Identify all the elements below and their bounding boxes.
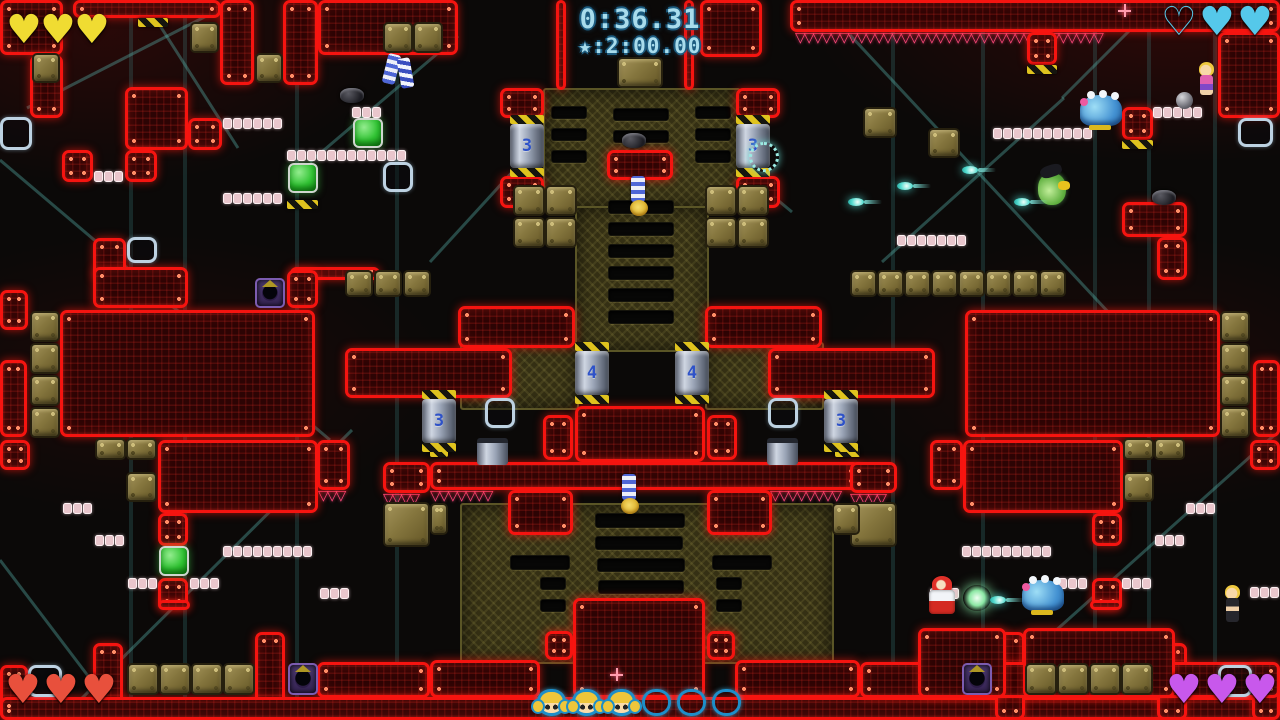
rescued-sister-icon — [607, 689, 636, 716]
pink-tile — [330, 588, 339, 599]
red-switch-block — [188, 118, 222, 150]
cannon-block — [288, 663, 318, 695]
pink-tile-row — [287, 150, 406, 161]
spike-strip: ▽▽▽▽▽▽▽ — [430, 490, 508, 504]
red-switch-block — [0, 440, 30, 470]
pink-tile — [233, 118, 242, 129]
metal-crate-block — [545, 185, 577, 216]
piston-cylinder: 4 — [675, 351, 709, 395]
vent-slot — [540, 577, 566, 590]
sparkle-sprite — [610, 668, 623, 681]
heart-top_left-filled: ♥ — [74, 10, 110, 50]
vent-slot — [695, 150, 731, 163]
pink-tile-row — [128, 578, 157, 589]
metal-crate-block — [1220, 407, 1250, 438]
pink-tile — [992, 546, 1001, 557]
metal-crate-block — [832, 503, 860, 535]
pink-tile — [115, 535, 124, 546]
pink-tile — [1003, 128, 1012, 139]
pink-tile — [907, 235, 916, 246]
pink-tile — [73, 503, 82, 514]
numbered-piston: 3 — [422, 390, 456, 452]
numbered-piston: 3 — [510, 115, 544, 177]
metal-crate-block — [383, 22, 413, 53]
pink-tile — [1270, 587, 1279, 598]
pink-tile — [972, 546, 981, 557]
pink-tile-row — [1153, 107, 1202, 118]
red-switch-block — [508, 490, 573, 535]
pink-tile — [397, 150, 406, 161]
pink-tile — [94, 171, 103, 182]
vent-slot — [608, 222, 674, 236]
pink-tile — [223, 193, 232, 204]
pink-tile-row — [993, 128, 1092, 139]
red-switch-block — [1122, 107, 1153, 140]
pink-tile-row — [223, 118, 282, 129]
item-bracket — [1238, 118, 1273, 147]
pink-tile — [1012, 546, 1021, 557]
pink-tile — [253, 118, 262, 129]
pink-tile — [982, 546, 991, 557]
pink-tile — [253, 546, 262, 557]
pink-tile — [1063, 128, 1072, 139]
heart-bottom_right-filled: ♥ — [1242, 670, 1278, 710]
player-upside-down-sprite — [618, 474, 642, 514]
heart-top_right-filled: ♥ — [1199, 2, 1235, 42]
pink-tile — [263, 546, 272, 557]
cannon-block — [255, 278, 285, 308]
item-bracket — [383, 162, 413, 192]
pink-tile — [128, 578, 137, 589]
metal-crate-block — [190, 22, 219, 53]
red-switch-block — [60, 310, 315, 437]
heart-bottom_left-filled: ♥ — [81, 670, 117, 710]
metal-crate-block — [30, 407, 60, 438]
red-switch-block — [158, 513, 188, 546]
green-block — [288, 163, 318, 193]
pink-tile — [320, 588, 329, 599]
pink-tile — [387, 150, 396, 161]
heart-top_right-filled: ♥ — [1237, 2, 1273, 42]
rescued-sister-icon — [572, 689, 601, 716]
pink-tile-row — [1186, 503, 1215, 514]
metal-crate-block — [30, 311, 60, 342]
red-switch-block — [158, 440, 318, 513]
piston-cylinder: 3 — [422, 399, 456, 443]
metal-crate-block — [705, 185, 737, 216]
heart-top_right-empty: ♡ — [1161, 2, 1197, 42]
pink-tile — [148, 578, 157, 589]
red-switch-block — [383, 462, 430, 493]
metal-crate-block — [95, 438, 126, 460]
pink-tile — [377, 150, 386, 161]
pink-tile — [263, 193, 272, 204]
pink-tile — [372, 107, 381, 118]
pink-tile-row — [63, 503, 92, 514]
metal-crate-block — [513, 185, 545, 216]
pink-tile — [243, 193, 252, 204]
red-switch-block — [158, 600, 190, 610]
pink-tile — [1193, 107, 1202, 118]
pink-tile — [223, 118, 232, 129]
pink-tile — [297, 150, 306, 161]
red-switch-block — [458, 306, 575, 348]
pink-tile — [1073, 128, 1082, 139]
pink-tile — [233, 193, 242, 204]
numbered-piston: 4 — [575, 342, 609, 404]
sparkle-sprite — [1118, 4, 1131, 17]
vent-slot — [608, 266, 674, 280]
pink-tile — [1053, 128, 1062, 139]
metal-crate-block — [1154, 438, 1185, 460]
metal-crate-block — [30, 343, 60, 374]
metal-crate-block — [1220, 311, 1250, 342]
pink-tile-row — [95, 535, 124, 546]
pink-tile — [352, 107, 361, 118]
pink-tile — [1042, 546, 1051, 557]
metal-crate-block — [345, 270, 373, 297]
pink-tile — [347, 150, 356, 161]
pink-tile-row — [223, 193, 282, 204]
game-screen: 0:36.31 ★:2:00.00 ▽▽▽▽▽▽▽▽▽▽▽▽▽▽▽▽▽▽▽▽▽▽… — [0, 0, 1280, 720]
green-block — [159, 546, 189, 576]
pink-tile-row — [190, 578, 219, 589]
hazard-stripe — [1027, 65, 1057, 74]
pink-tile — [1022, 546, 1031, 557]
red-switch-block — [575, 406, 705, 462]
vent-slot — [597, 558, 685, 572]
pink-tile — [303, 546, 312, 557]
pink-tile — [104, 171, 113, 182]
red-switch-block — [0, 360, 27, 437]
pink-tile — [937, 235, 946, 246]
metal-crate-block — [383, 502, 430, 547]
metal-crate-block — [1025, 663, 1057, 695]
metal-crate-block — [403, 270, 431, 297]
pink-tile — [243, 118, 252, 129]
red-switch-block — [125, 87, 188, 150]
piston-hazard-cap — [510, 168, 544, 177]
energy-projectile — [848, 198, 864, 206]
pink-tile — [273, 118, 282, 129]
red-switch-block — [220, 0, 254, 85]
red-switch-block — [707, 415, 737, 460]
level-timer: 0:36.31 ★:2:00.00 — [540, 5, 740, 57]
pink-tile — [138, 578, 147, 589]
pink-tile — [1173, 107, 1182, 118]
red-switch-block — [62, 150, 93, 182]
pink-tile-row — [94, 171, 123, 182]
pink-tile — [1032, 546, 1041, 557]
pink-tile — [947, 235, 956, 246]
vent-slot — [608, 244, 674, 258]
pink-tile — [1078, 578, 1087, 589]
red-switch-block — [1027, 32, 1057, 65]
pink-tile-row — [1155, 535, 1184, 546]
item-bracket — [485, 398, 515, 428]
red-switch-block — [735, 660, 860, 698]
pink-tile — [63, 503, 72, 514]
metal-crate-block — [374, 270, 402, 297]
heart-top_left-filled: ♥ — [6, 10, 42, 50]
red-switch-block — [965, 310, 1220, 437]
sister-slot-empty-icon — [642, 689, 671, 716]
vent-slot — [712, 555, 772, 570]
pink-tile — [1196, 503, 1205, 514]
red-switch-block — [1253, 360, 1280, 437]
small-dark-enemy-sprite — [622, 133, 646, 148]
metal-crate-block — [413, 22, 443, 53]
red-switch-block — [1122, 202, 1187, 237]
hazard-stripe — [287, 200, 318, 209]
pink-tile — [1043, 128, 1052, 139]
piston-hazard-cap — [575, 342, 609, 351]
small-dark-enemy-sprite — [340, 88, 364, 103]
spike-strip: ▽▽▽ — [318, 490, 350, 504]
piston-hazard-cap — [736, 115, 770, 124]
vent-slot — [608, 310, 674, 324]
hooligan-pair-sprite — [383, 52, 415, 90]
piston-hazard-cap — [824, 443, 858, 452]
heart-top_left-filled: ♥ — [40, 10, 76, 50]
piston-hazard-cap — [824, 390, 858, 399]
red-switch-block — [317, 662, 430, 698]
hazard-stripe — [1122, 140, 1153, 149]
metal-crate-block — [904, 270, 931, 297]
hooligan-sister-dark-sprite — [1222, 585, 1242, 625]
red-switch-block — [707, 631, 735, 660]
pink-tile — [1186, 503, 1195, 514]
vent-slot — [551, 128, 587, 141]
piston-hazard-cap — [575, 395, 609, 404]
red-switch-block — [850, 462, 897, 493]
timer-target: ★:2:00.00 — [540, 35, 740, 57]
item-bracket — [0, 117, 32, 150]
pink-tile — [357, 150, 366, 161]
cannon-block — [962, 663, 992, 695]
vent-slot — [551, 106, 587, 119]
hooligan-sister-pink-sprite — [1196, 62, 1216, 108]
vent-slot — [551, 150, 587, 163]
metal-crate-block — [191, 663, 223, 695]
vent-slot — [598, 580, 684, 594]
target-reticle-sprite — [749, 142, 779, 172]
metal-crate-block — [545, 217, 577, 248]
vent-slot — [695, 106, 731, 119]
pink-tile — [340, 588, 349, 599]
piston-hazard-cap — [422, 443, 456, 452]
pink-tile — [210, 578, 219, 589]
metal-crate-block — [1220, 343, 1250, 374]
red-switch-block — [1250, 440, 1280, 470]
energy-projectile — [1014, 198, 1030, 206]
pink-tile — [327, 150, 336, 161]
pink-tile — [1153, 107, 1162, 118]
gray-ball-sprite — [1176, 92, 1193, 109]
pink-tile — [1175, 535, 1184, 546]
piston-stub — [767, 438, 798, 465]
piston-cylinder: 3 — [510, 124, 544, 168]
pink-tile — [1068, 578, 1077, 589]
pink-tile — [263, 118, 272, 129]
metal-crate-block — [1057, 663, 1089, 695]
hazard-stripe — [138, 18, 168, 27]
red-switch-block — [93, 267, 188, 308]
metal-crate-block — [737, 185, 769, 216]
blob-enemy-sprite — [1080, 95, 1122, 126]
pink-tile — [1002, 546, 1011, 557]
metal-crate-block — [737, 217, 769, 248]
metal-crate-block — [928, 128, 960, 158]
red-switch-block — [287, 270, 318, 308]
pink-tile — [95, 535, 104, 546]
pink-tile — [1163, 107, 1172, 118]
vent-slot — [695, 128, 731, 141]
pink-tile — [200, 578, 209, 589]
heart-bottom_left-filled: ♥ — [43, 670, 79, 710]
red-switch-block — [545, 631, 573, 660]
pink-tile — [1132, 578, 1141, 589]
pink-tile — [1155, 535, 1164, 546]
metal-crate-block — [617, 57, 663, 88]
metal-crate-block — [159, 663, 191, 695]
timer-current: 0:36.31 — [540, 5, 740, 35]
pink-tile — [273, 193, 282, 204]
pink-tile-row — [320, 588, 349, 599]
pink-tile — [362, 107, 371, 118]
metal-crate-block — [255, 53, 283, 83]
red-switch-block — [705, 306, 822, 348]
piston-hazard-cap — [675, 395, 709, 404]
vent-slot — [595, 536, 683, 550]
red-switch-block — [1157, 237, 1187, 280]
pink-tile — [1033, 128, 1042, 139]
metal-crate-block — [126, 438, 157, 460]
pink-tile — [1260, 587, 1269, 598]
player-upside-down-sprite — [627, 176, 651, 216]
numbered-piston: 4 — [675, 342, 709, 404]
pink-tile — [337, 150, 346, 161]
pink-tile — [1250, 587, 1259, 598]
pink-tile — [233, 546, 242, 557]
item-bracket — [127, 237, 157, 263]
red-switch-block — [1092, 513, 1122, 546]
vent-slot — [716, 599, 742, 612]
metal-crate-block — [127, 663, 159, 695]
metal-crate-block — [1089, 663, 1121, 695]
pink-tile — [1023, 128, 1032, 139]
pink-tile-row — [223, 546, 312, 557]
red-switch-block — [125, 150, 157, 182]
vent-slot — [510, 555, 570, 570]
heart-bottom_right-filled: ♥ — [1204, 670, 1240, 710]
energy-projectile — [897, 182, 913, 190]
metal-crate-block — [705, 217, 737, 248]
metal-crate-block — [958, 270, 985, 297]
pink-tile-row — [1122, 578, 1151, 589]
pink-tile — [293, 546, 302, 557]
piston-cylinder: 3 — [824, 399, 858, 443]
piston-hazard-cap — [422, 390, 456, 399]
red-switch-block — [707, 490, 772, 535]
metal-crate-block — [32, 53, 60, 83]
pink-tile — [1142, 578, 1151, 589]
piston-cylinder: 4 — [575, 351, 609, 395]
energy-projectile — [990, 596, 1006, 604]
pink-tile — [897, 235, 906, 246]
spike-strip: ▽▽▽▽▽▽▽▽ — [770, 490, 860, 504]
metal-crate-block — [430, 503, 448, 535]
pink-tile — [287, 150, 296, 161]
vent-slot — [595, 513, 685, 528]
metal-crate-block — [223, 663, 255, 695]
muzzle-flash-sprite — [963, 585, 991, 611]
heart-bottom_left-filled: ♥ — [5, 670, 41, 710]
pink-tile — [1013, 128, 1022, 139]
small-dark-enemy-sprite — [1152, 190, 1176, 205]
pink-tile — [253, 193, 262, 204]
pink-tile — [962, 546, 971, 557]
metal-crate-block — [877, 270, 904, 297]
pink-tile — [957, 235, 966, 246]
red-switch-block — [930, 440, 963, 490]
metal-crate-block — [1220, 375, 1250, 406]
metal-crate-block — [1123, 438, 1154, 460]
metal-crate-block — [1039, 270, 1066, 297]
red-switch-block — [543, 415, 573, 460]
red-switch-block — [0, 290, 28, 330]
metal-crate-block — [931, 270, 958, 297]
piston-stub — [477, 438, 508, 465]
red-switch-block — [430, 462, 860, 490]
pink-tile — [83, 503, 92, 514]
metal-crate-block — [863, 107, 897, 138]
pink-tile — [105, 535, 114, 546]
pink-tile — [283, 546, 292, 557]
pink-tile-row — [897, 235, 966, 246]
red-switch-block — [736, 88, 780, 118]
pink-tile — [1165, 535, 1174, 546]
vent-slot — [608, 288, 674, 302]
red-switch-block — [500, 88, 544, 118]
vent-slot — [540, 599, 566, 612]
green-block — [353, 118, 383, 148]
pink-tile — [367, 150, 376, 161]
pink-tile — [1206, 503, 1215, 514]
pink-tile — [927, 235, 936, 246]
pink-tile — [917, 235, 926, 246]
red-switch-block — [1090, 600, 1122, 610]
red-switch-block — [283, 0, 318, 85]
metal-crate-block — [1012, 270, 1039, 297]
vent-slot — [716, 577, 742, 590]
heart-bottom_right-filled: ♥ — [1166, 670, 1202, 710]
red-switch-block — [430, 660, 540, 698]
metal-crate-block — [30, 375, 60, 406]
pink-tile-row — [352, 107, 381, 118]
pink-tile — [993, 128, 1002, 139]
pink-tile — [114, 171, 123, 182]
metal-crate-block — [985, 270, 1012, 297]
piston-hazard-cap — [675, 342, 709, 351]
energy-projectile — [962, 166, 978, 174]
pink-tile — [307, 150, 316, 161]
red-switch-block — [317, 440, 350, 490]
metal-crate-block — [126, 472, 157, 502]
pink-tile — [1122, 578, 1131, 589]
red-switch-block — [573, 598, 705, 698]
pink-tile — [243, 546, 252, 557]
